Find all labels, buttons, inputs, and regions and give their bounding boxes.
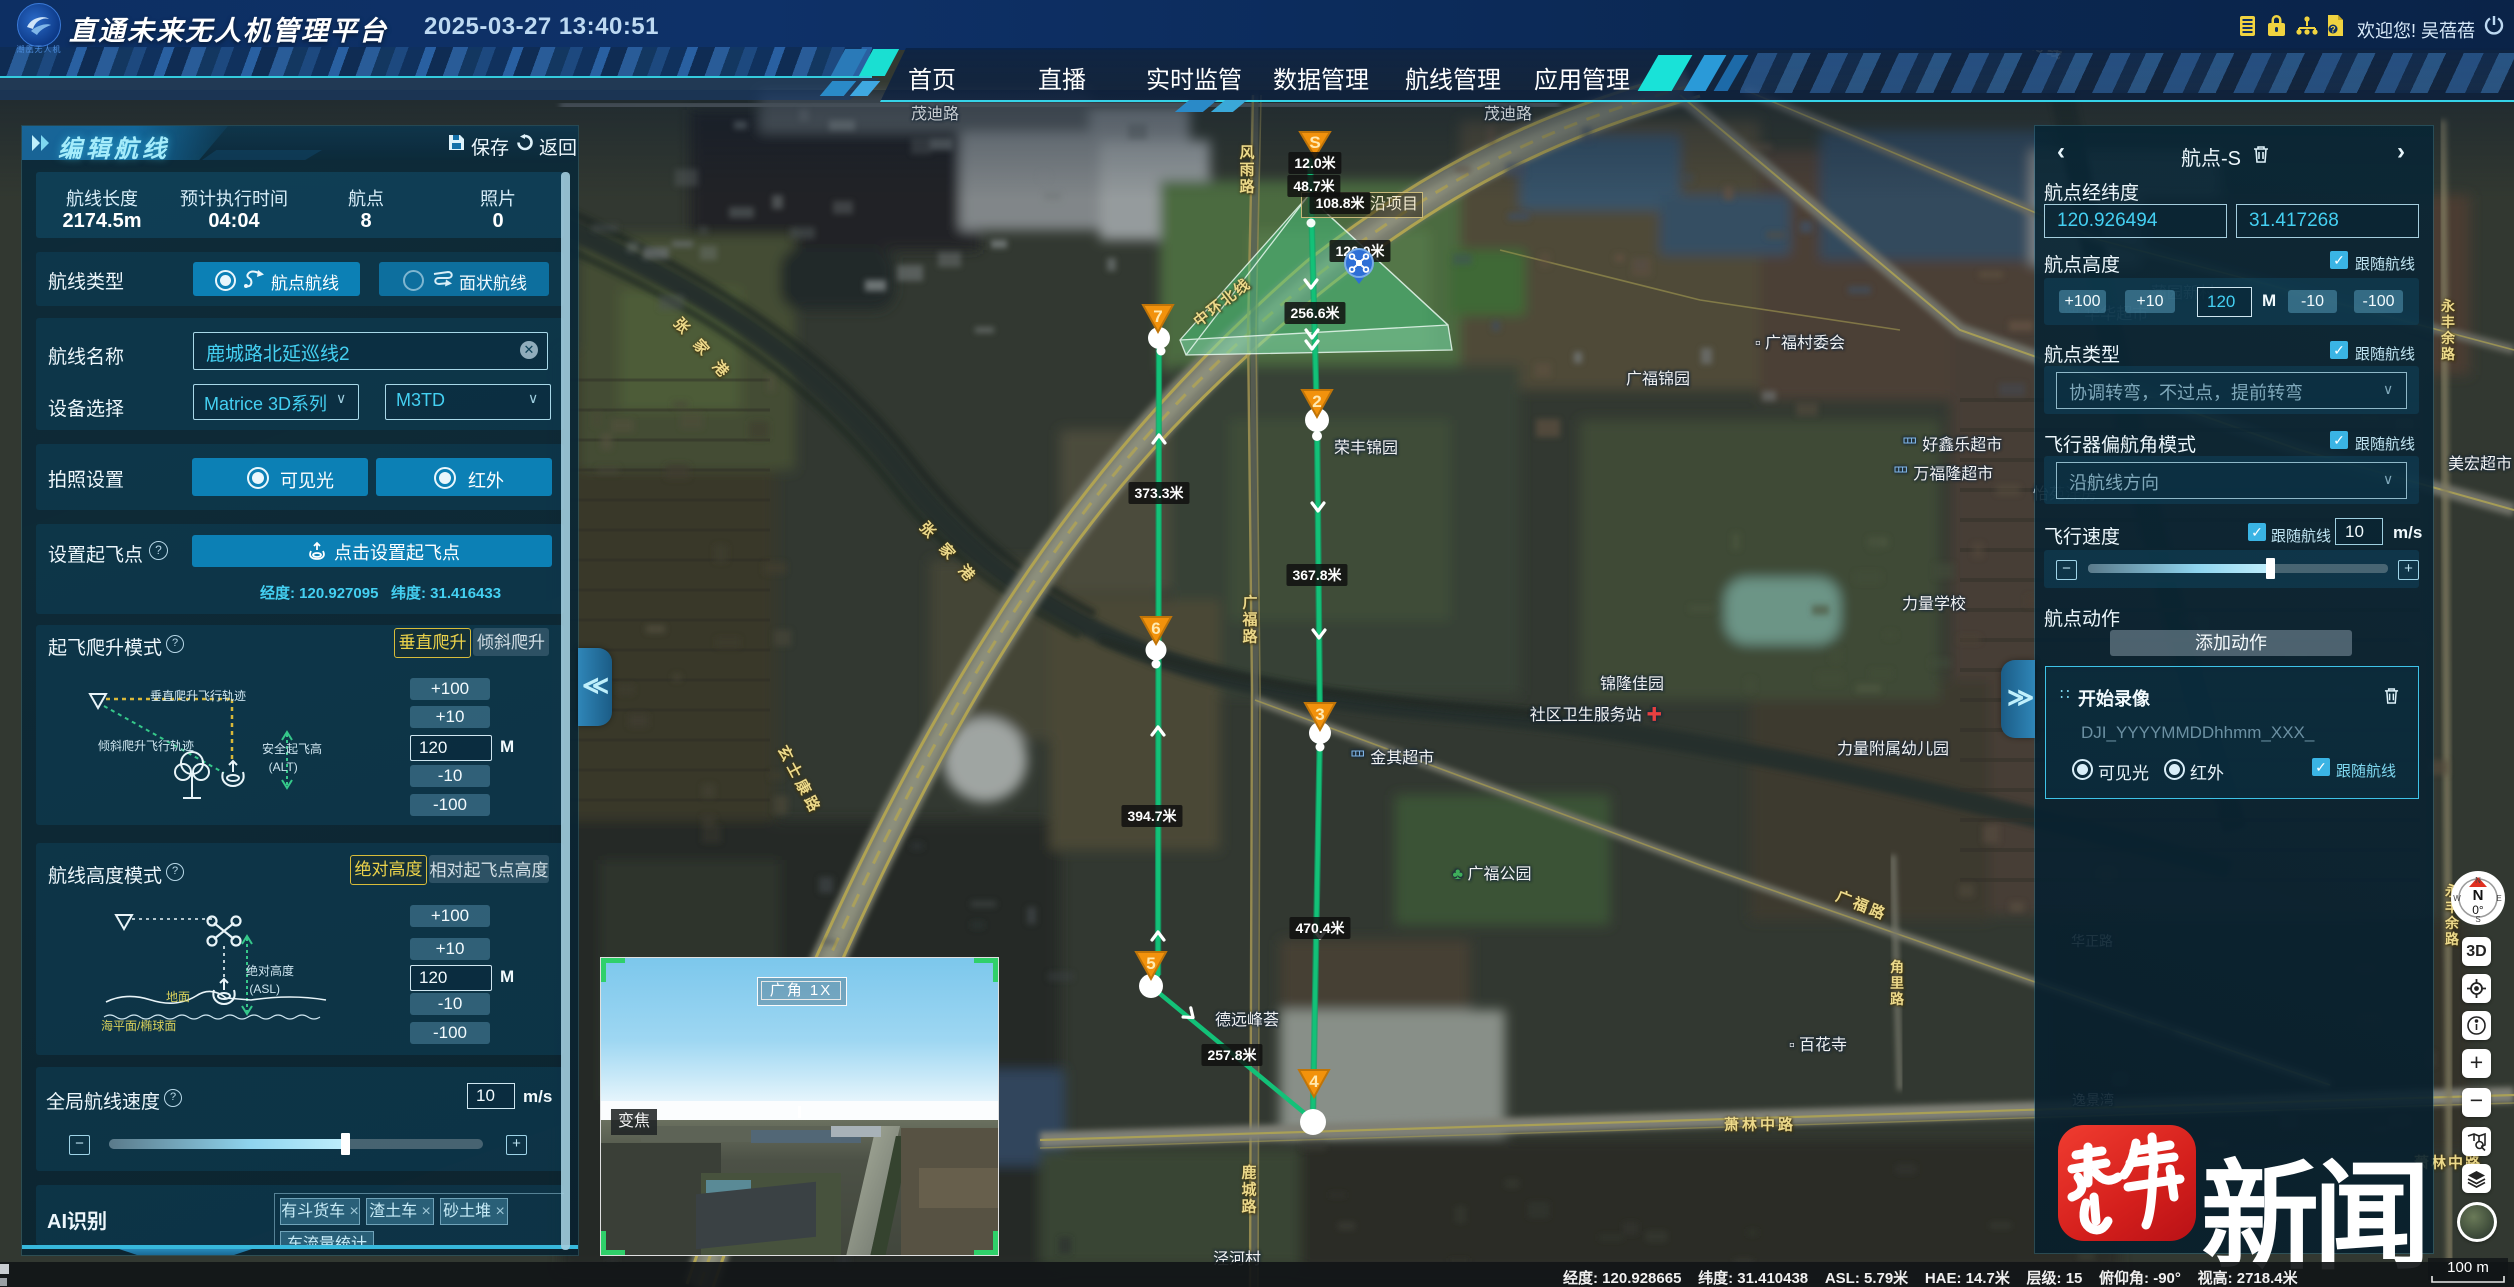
svg-text:0°: 0° xyxy=(2472,903,2484,917)
svg-text:N: N xyxy=(2473,887,2484,904)
svg-text:E: E xyxy=(2496,894,2501,903)
svg-text:N: N xyxy=(2475,876,2481,885)
svg-text:W: W xyxy=(2453,894,2461,903)
